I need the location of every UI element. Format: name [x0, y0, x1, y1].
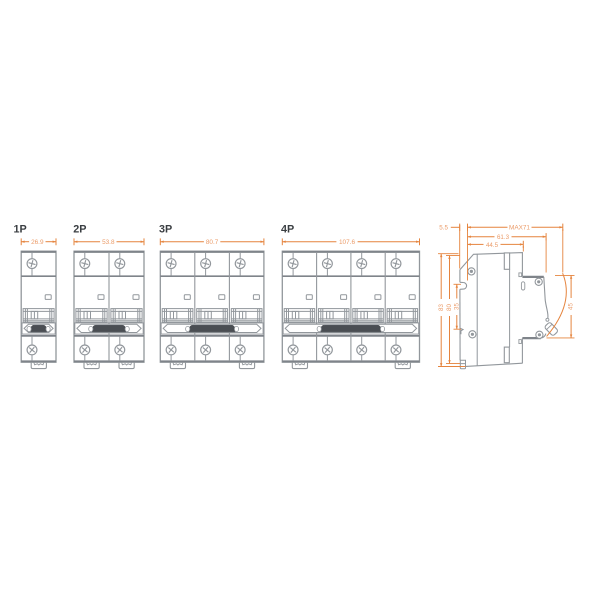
svg-text:44.5: 44.5	[486, 242, 499, 249]
svg-text:1P: 1P	[14, 223, 27, 235]
svg-text:83: 83	[438, 304, 445, 311]
svg-text:61.3: 61.3	[497, 234, 510, 241]
svg-text:MAX71: MAX71	[509, 225, 530, 232]
svg-text:80.7: 80.7	[206, 239, 219, 246]
svg-text:2P: 2P	[73, 223, 86, 235]
svg-text:80: 80	[446, 304, 453, 311]
svg-text:53.8: 53.8	[102, 239, 115, 246]
svg-text:3P: 3P	[159, 223, 172, 235]
svg-text:4P: 4P	[281, 223, 294, 235]
svg-text:35: 35	[453, 303, 460, 310]
svg-text:45: 45	[568, 303, 575, 310]
svg-text:107.6: 107.6	[339, 239, 355, 246]
svg-text:5.5: 5.5	[439, 225, 448, 232]
svg-text:26.9: 26.9	[31, 239, 44, 246]
